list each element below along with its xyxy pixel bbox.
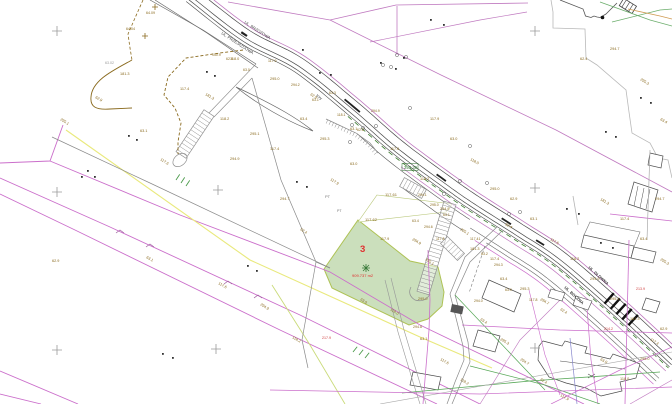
- svg-text:117.8: 117.8: [529, 298, 538, 302]
- svg-text:295.3: 295.3: [520, 287, 530, 291]
- svg-text:909.737 m2: 909.737 m2: [352, 273, 374, 278]
- svg-text:62.9: 62.9: [510, 197, 517, 201]
- svg-text:214.2: 214.2: [604, 327, 613, 331]
- svg-text:63.1: 63.1: [140, 129, 147, 133]
- svg-text:118.2: 118.2: [420, 177, 429, 181]
- svg-text:63.0: 63.0: [450, 137, 457, 141]
- svg-text:63.0: 63.0: [350, 162, 357, 166]
- svg-text:63.4: 63.4: [640, 237, 647, 241]
- svg-text:117.61: 117.61: [385, 192, 398, 197]
- svg-text:63.02: 63.02: [105, 61, 114, 65]
- svg-text:118.2: 118.2: [220, 117, 229, 121]
- svg-text:117.4: 117.4: [620, 217, 629, 221]
- svg-text:294.6: 294.6: [424, 225, 433, 229]
- svg-text:117.4: 117.4: [490, 257, 499, 261]
- svg-text:117.9: 117.9: [268, 59, 277, 63]
- svg-text:63.1: 63.1: [350, 127, 357, 131]
- svg-text:63.4: 63.4: [500, 277, 507, 281]
- svg-text:63.4: 63.4: [412, 219, 419, 223]
- svg-text:295.3: 295.3: [320, 137, 330, 141]
- svg-text:295.0: 295.0: [270, 77, 280, 81]
- svg-text:117.41: 117.41: [470, 237, 480, 241]
- svg-text:118.1: 118.1: [337, 113, 346, 117]
- svg-text:63.0: 63.0: [243, 68, 250, 72]
- svg-text:181.3: 181.3: [120, 72, 130, 76]
- svg-text:295.1: 295.1: [610, 297, 620, 301]
- svg-text:294.8: 294.8: [413, 325, 422, 329]
- svg-text:294.7: 294.7: [280, 197, 290, 201]
- svg-text:295.0: 295.0: [490, 187, 500, 191]
- svg-text:PT: PT: [325, 194, 331, 199]
- svg-text:63.1: 63.1: [443, 213, 450, 217]
- svg-text:3: 3: [360, 244, 365, 255]
- svg-text:295.0: 295.0: [430, 203, 439, 207]
- svg-text:63.0: 63.0: [505, 288, 512, 292]
- svg-text:64.04: 64.04: [126, 27, 135, 31]
- svg-text:294.9: 294.9: [440, 207, 450, 211]
- svg-text:117.6: 117.6: [390, 147, 399, 151]
- svg-text:62.4: 62.4: [580, 57, 587, 61]
- svg-text:PT: PT: [337, 209, 342, 213]
- svg-text:294.7: 294.7: [655, 197, 665, 201]
- svg-text:181.3: 181.3: [470, 247, 480, 251]
- svg-text:117.4: 117.4: [270, 147, 279, 151]
- svg-text:118.0: 118.0: [620, 377, 629, 381]
- svg-text:62.9: 62.9: [52, 259, 59, 263]
- svg-text:63.3: 63.3: [329, 91, 336, 95]
- svg-text:295.1: 295.1: [250, 132, 260, 136]
- svg-text:217.9: 217.9: [322, 336, 331, 340]
- svg-text:295.0: 295.0: [418, 297, 428, 301]
- svg-text:63.2: 63.2: [481, 252, 488, 256]
- svg-text:64.09: 64.09: [146, 11, 155, 15]
- svg-text:117.8: 117.8: [436, 237, 445, 241]
- svg-text:294.2: 294.2: [291, 83, 300, 87]
- svg-text:294.1: 294.1: [418, 193, 427, 197]
- svg-text:118.2: 118.2: [570, 257, 579, 261]
- svg-text:117.9: 117.9: [430, 117, 439, 121]
- svg-text:117.4: 117.4: [180, 87, 189, 91]
- svg-text:118.0: 118.0: [230, 57, 239, 61]
- svg-text:63.4: 63.4: [300, 117, 307, 121]
- svg-text:117.9: 117.9: [380, 237, 389, 241]
- svg-text:150.9: 150.9: [212, 53, 221, 57]
- svg-text:62.8: 62.8: [357, 128, 364, 132]
- svg-text:213.9: 213.9: [636, 287, 645, 291]
- svg-text:63.1: 63.1: [420, 337, 427, 341]
- svg-text:117.62: 117.62: [365, 217, 378, 222]
- svg-text:294.9: 294.9: [371, 109, 380, 113]
- svg-text:294.9: 294.9: [590, 277, 600, 281]
- svg-text:63.1: 63.1: [530, 217, 537, 221]
- svg-text:294.7: 294.7: [610, 47, 620, 51]
- svg-text:294.9: 294.9: [230, 157, 240, 161]
- svg-text:294.0: 294.0: [474, 299, 483, 303]
- svg-text:295.36: 295.36: [404, 165, 418, 170]
- svg-text:295.0: 295.0: [640, 357, 650, 361]
- svg-text:181.3: 181.3: [630, 317, 640, 321]
- svg-text:62.9: 62.9: [660, 327, 667, 331]
- svg-text:294.3: 294.3: [494, 263, 503, 267]
